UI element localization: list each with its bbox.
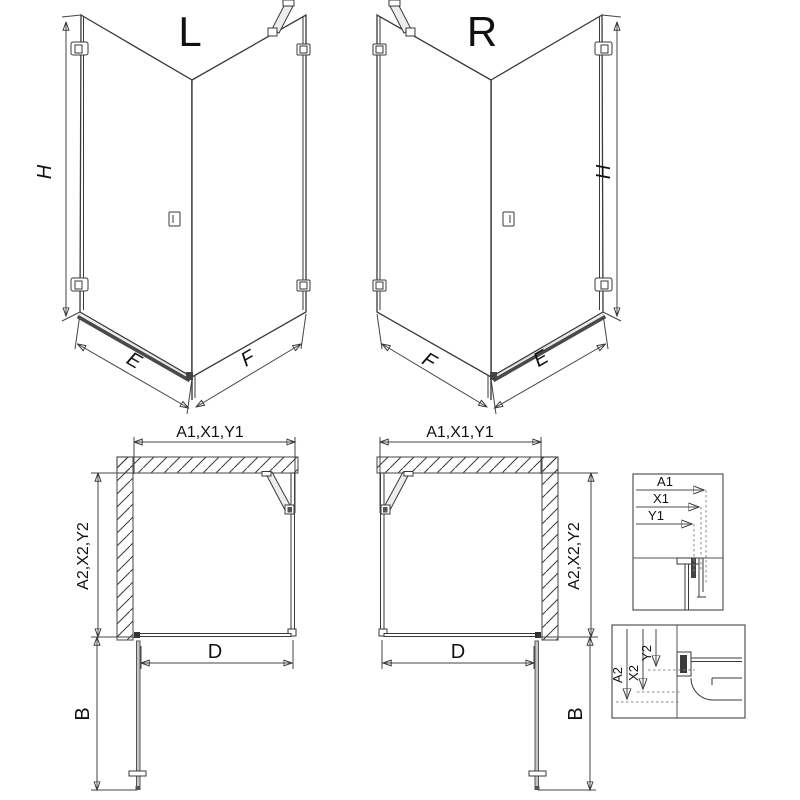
detail-a1-label: A1 <box>657 474 673 489</box>
dim-label-height-right: H <box>593 164 615 179</box>
wall-top-left-plan <box>117 457 298 473</box>
iso-right-label: R <box>467 8 497 55</box>
plan-view-right: A1,X1,Y1 A2,X2,Y2 D B <box>377 424 598 790</box>
detail-depth-codes: A2 X2 Y2 <box>610 625 745 718</box>
detail-a2-label: A2 <box>610 667 625 683</box>
iso-view-left: L H E F <box>34 0 310 414</box>
plan-right-door-swing: B <box>565 707 587 720</box>
detail-x1-label: X1 <box>653 491 669 506</box>
plan-right-door-opening: D <box>451 641 465 663</box>
plan-left-door-swing: B <box>72 707 94 720</box>
iso-view-right: R H F E <box>373 0 621 414</box>
plan-left-depth-codes: A2,X2,Y2 <box>75 522 92 590</box>
dim-label-f-left: F <box>237 345 260 371</box>
dim-label-f-right: F <box>418 348 441 374</box>
iso-left-label: L <box>178 8 201 55</box>
shower-enclosure-technical-drawing: L H E F R H F E A1,X1,Y1 A2,X2,Y2 D B <box>0 0 800 800</box>
detail-x2-label: X2 <box>626 665 641 681</box>
plan-left-door-opening: D <box>208 641 222 663</box>
dim-label-e-left: E <box>123 348 146 374</box>
wall-side-left-plan <box>117 457 133 640</box>
plan-right-depth-codes: A2,X2,Y2 <box>566 522 583 590</box>
detail-y2-label: Y2 <box>639 645 654 661</box>
plan-right-width-codes: A1,X1,Y1 <box>426 424 494 441</box>
dim-label-height-left: H <box>34 164 56 179</box>
detail-y1-label: Y1 <box>648 508 664 523</box>
plan-left-width-codes: A1,X1,Y1 <box>176 424 244 441</box>
plan-view-left: A1,X1,Y1 A2,X2,Y2 D B <box>72 424 298 790</box>
wall-side-right-plan <box>542 457 558 640</box>
detail-width-codes: A1 X1 Y1 <box>633 474 723 610</box>
drawing-canvas: L H E F R H F E A1,X1,Y1 A2,X2,Y2 D B <box>0 0 800 800</box>
wall-top-right-plan <box>377 457 558 473</box>
